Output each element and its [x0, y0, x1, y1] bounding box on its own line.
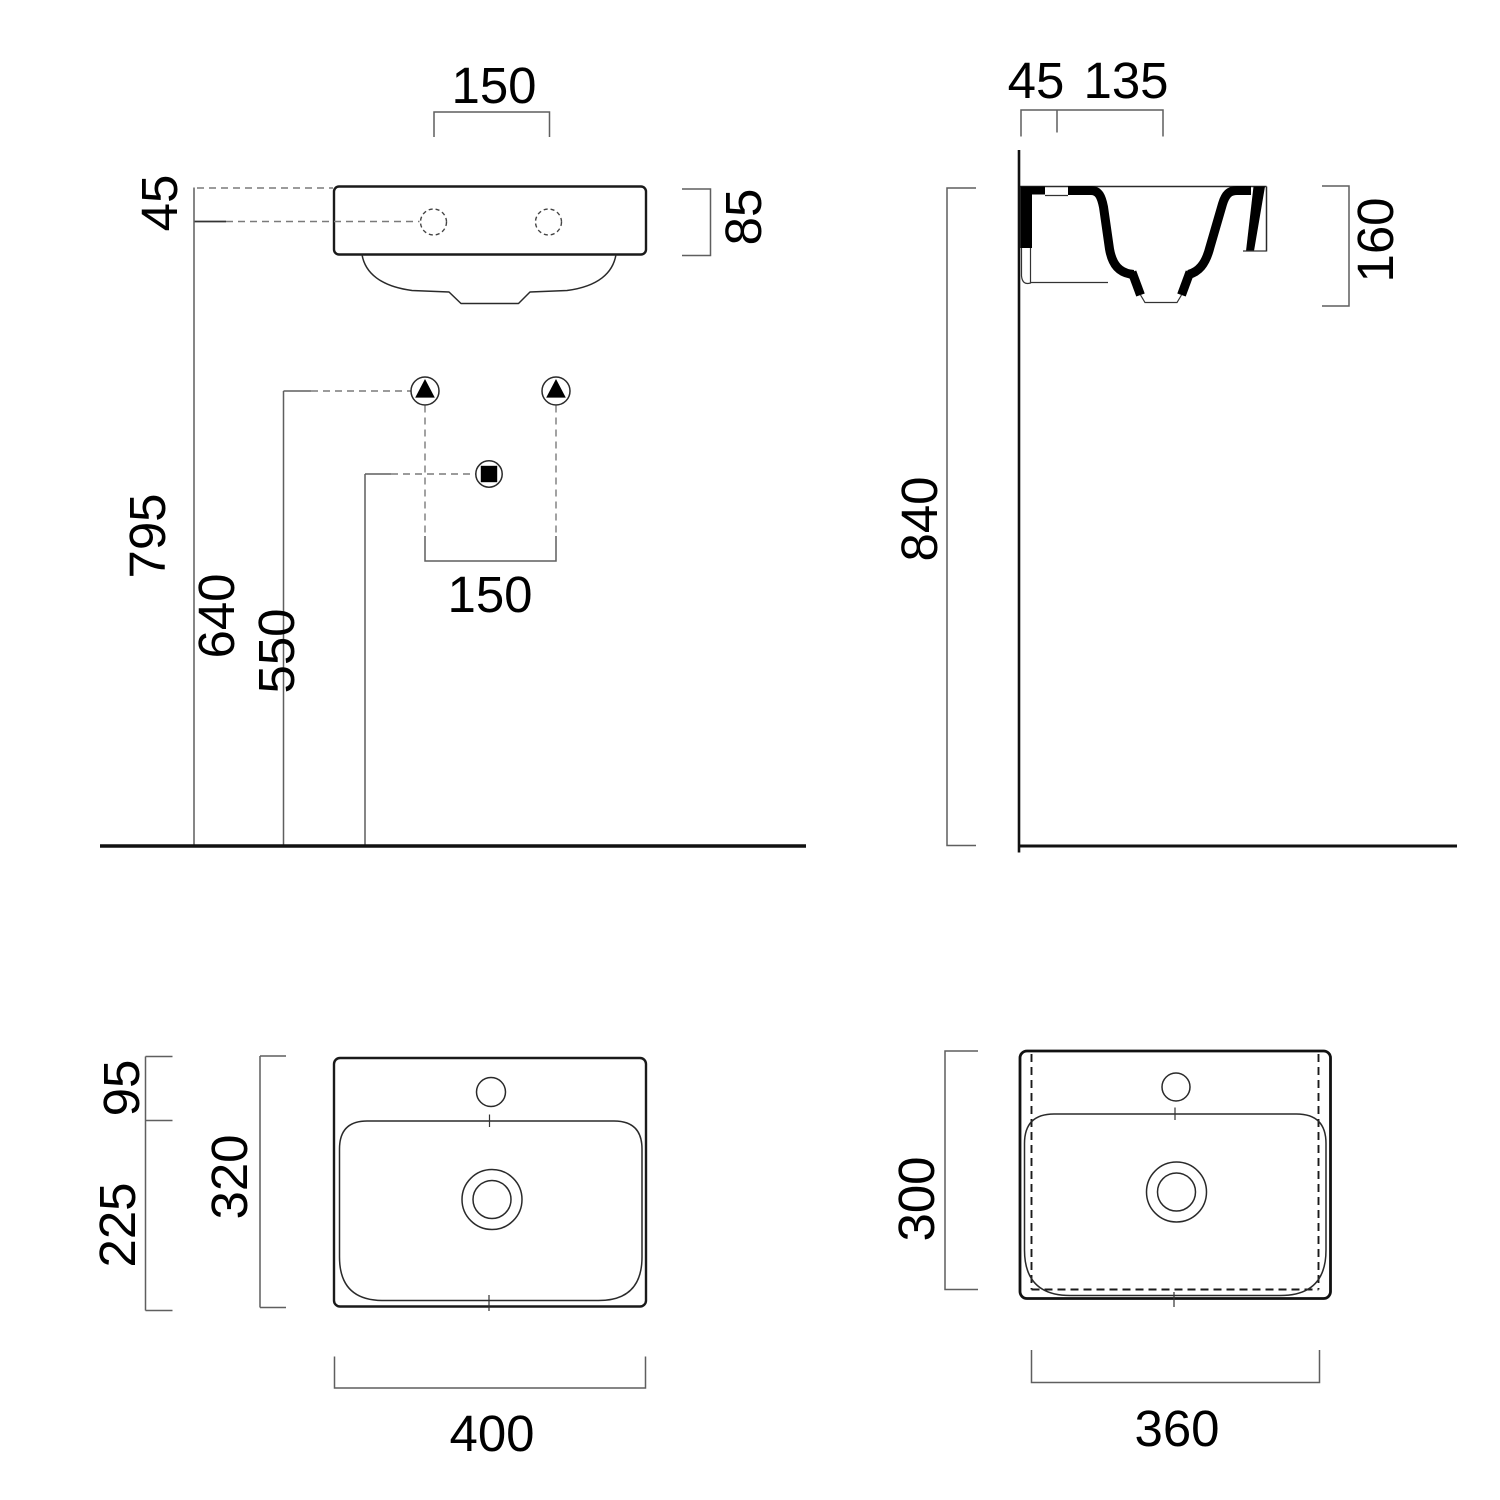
dim-label-tap-spacing-top: 150 — [451, 57, 536, 114]
dim-bracket-basin-depth — [1322, 186, 1349, 306]
plan-b-body-outline — [1020, 1051, 1331, 1299]
flange-tail-outline — [1022, 248, 1031, 284]
dim-label-basin-depth: 160 — [1347, 197, 1404, 282]
side-section-view: 45 135 160 840 — [891, 52, 1457, 853]
drain-lip-left-section — [1132, 272, 1141, 295]
dim-label-wall-offset: 45 — [1008, 52, 1065, 109]
front-rim-section — [1246, 187, 1265, 252]
dim-label-supply-spacing: 150 — [447, 566, 532, 623]
dim-bracket-depth-b — [945, 1051, 978, 1290]
dim-bracket-wall-tap — [1021, 110, 1163, 137]
waste-symbol — [476, 461, 502, 487]
plan-b-drain-outer — [1147, 1162, 1207, 1222]
dim-label-mount-height: 840 — [891, 476, 948, 561]
supply-symbol-right — [542, 377, 570, 405]
plan-bowl-outline — [340, 1121, 643, 1301]
dim-bracket-width — [335, 1357, 646, 1389]
dim-label-height-supply: 640 — [188, 573, 245, 658]
dim-bracket-rim-height — [682, 189, 711, 256]
dim-label-width: 400 — [449, 1405, 534, 1462]
bowl-outline — [362, 255, 616, 304]
drain-outline — [1141, 295, 1182, 303]
supply-triangle-left-icon — [415, 379, 435, 398]
dim-label-width-b: 360 — [1134, 1400, 1219, 1457]
dim-bracket-tap-spacing-top — [434, 112, 550, 137]
plan-body-outline — [334, 1058, 646, 1307]
wall-flange-section — [1020, 187, 1045, 249]
dim-bracket-width-b — [1032, 1350, 1320, 1383]
tap-hole-left — [421, 209, 447, 235]
plan-b-center-ticks — [1174, 1108, 1175, 1308]
washbasin-technical-drawing: 150 45 85 795 640 550 — [0, 0, 1500, 1500]
plan-center-ticks — [489, 1115, 490, 1312]
bowl-wall-left-section — [1068, 191, 1134, 275]
drain-lip-right-section — [1182, 272, 1191, 295]
dim-label-bowl-depth: 225 — [89, 1182, 146, 1267]
dim-label-depth-b: 300 — [888, 1156, 945, 1241]
dim-bracket-mount-height — [947, 188, 976, 846]
dim-label-total-depth: 320 — [201, 1134, 258, 1219]
supply-symbol-left — [411, 377, 439, 405]
dim-line-550 — [365, 474, 391, 846]
basin-section — [1020, 187, 1267, 303]
waste-square-icon — [481, 466, 497, 482]
front-view: 150 45 85 795 640 550 — [100, 57, 806, 846]
plan-view-b: 300 360 — [888, 1051, 1331, 1457]
plan-b-bowl-outline — [1025, 1114, 1327, 1296]
supply-triangle-right-icon — [546, 379, 566, 398]
dim-label-deck-depth: 95 — [93, 1060, 150, 1117]
dim-bracket-total-depth — [260, 1056, 286, 1308]
bowl-wall-right-section — [1189, 191, 1252, 275]
dim-label-rim-height: 85 — [715, 189, 772, 246]
dim-bracket-supply-spacing — [425, 536, 556, 561]
plan-view: 95 225 320 400 — [89, 1056, 646, 1462]
plan-b-hidden-edges — [1032, 1054, 1319, 1290]
dim-label-height-rim: 795 — [119, 493, 176, 578]
plan-b-tap-hole — [1162, 1073, 1190, 1101]
plan-drain-outer — [462, 1170, 522, 1230]
technical-drawing-page: 150 45 85 795 640 550 — [0, 0, 1500, 1500]
sink-body-outline — [334, 187, 646, 255]
tap-hole-right — [536, 209, 562, 235]
dim-label-height-waste: 550 — [248, 608, 305, 693]
plan-b-drain-inner — [1158, 1173, 1196, 1211]
plan-drain-inner — [473, 1181, 511, 1219]
dim-label-rim-to-tap: 45 — [131, 175, 188, 232]
plan-tap-hole — [477, 1078, 506, 1107]
dim-label-tap-to-front: 135 — [1083, 52, 1168, 109]
